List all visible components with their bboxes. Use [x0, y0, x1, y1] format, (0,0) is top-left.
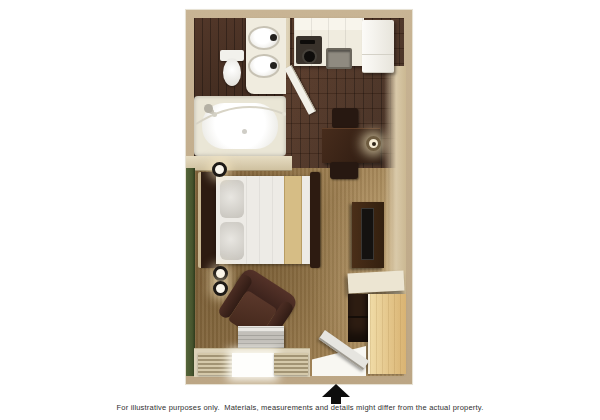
shower-curtain-rod — [186, 94, 290, 134]
sink-vanity — [246, 18, 286, 94]
pillow — [220, 222, 244, 260]
counter-shelf — [348, 271, 405, 294]
closet-cabinet — [368, 294, 406, 374]
east-wall — [384, 66, 406, 302]
stove-vent — [300, 40, 315, 44]
pillow — [220, 180, 244, 218]
entrance-arrow-icon — [322, 384, 350, 404]
showerhead-icon — [204, 104, 213, 113]
window-glass — [232, 353, 274, 377]
faucet — [270, 34, 277, 41]
tv-dresser — [352, 202, 384, 268]
desk-lamp-icon — [366, 136, 381, 151]
stove-burner — [302, 49, 317, 64]
wall-sconce-icon — [213, 266, 228, 281]
refrigerator-door-seam — [362, 54, 394, 55]
kitchen-sink — [326, 48, 352, 69]
disclaimer-text: For illustrative purposes only. Material… — [0, 403, 600, 412]
faucet — [270, 62, 277, 69]
desk-chair — [332, 108, 358, 128]
storage-shelf — [348, 294, 368, 342]
shelf-divider — [348, 316, 368, 318]
stove — [296, 36, 322, 64]
refrigerator — [362, 20, 394, 73]
toilet — [223, 59, 241, 86]
curtain — [198, 353, 232, 375]
green-accent-wall — [186, 168, 195, 376]
floor-plan-page: For illustrative purposes only. Material… — [0, 0, 600, 420]
wall-sconce-icon — [213, 281, 228, 296]
bed-runner — [284, 176, 302, 264]
curtain — [274, 353, 308, 375]
bed — [216, 176, 310, 264]
bathroom-partition-wall — [186, 156, 292, 171]
desk-chair — [330, 162, 358, 179]
ac-unit — [238, 326, 284, 348]
arrow-head — [322, 384, 350, 397]
window — [194, 348, 310, 377]
kitchen-counter — [294, 18, 364, 66]
floor-plan — [186, 10, 412, 384]
wall-sconce-icon — [212, 162, 227, 177]
tv — [361, 208, 374, 260]
bed-footboard — [310, 172, 320, 268]
